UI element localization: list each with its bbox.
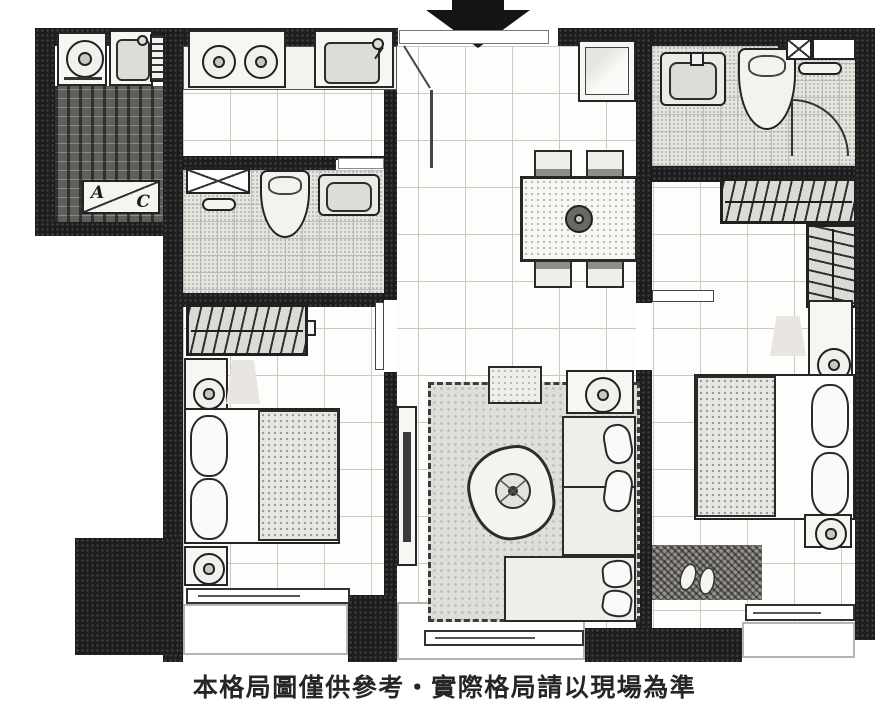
sliding-window-right-bedroom bbox=[745, 604, 855, 621]
lamp-icon bbox=[815, 518, 847, 550]
bathroom-door-sill bbox=[338, 158, 384, 169]
towel-bar bbox=[798, 62, 842, 75]
wall-ac-balcony-cap bbox=[35, 222, 183, 236]
pillow bbox=[190, 415, 228, 477]
washing-machine bbox=[57, 32, 107, 86]
woven-mat bbox=[652, 545, 762, 600]
wardrobe-right-top bbox=[720, 178, 857, 224]
side-table bbox=[566, 370, 634, 414]
wall-mid-lower bbox=[384, 372, 397, 602]
nightstand-right-top bbox=[808, 300, 853, 380]
wall-block-bottom-mid-left bbox=[348, 595, 397, 662]
television bbox=[403, 432, 411, 542]
refrigerator bbox=[578, 40, 636, 102]
wash-basin-master bbox=[318, 174, 380, 216]
ac-label-a: A bbox=[91, 183, 104, 203]
dining-chair bbox=[586, 150, 624, 178]
left-bedroom-door-leaf bbox=[375, 302, 384, 370]
nightstand-left-top bbox=[184, 358, 228, 410]
ac-label-c: C bbox=[136, 192, 150, 212]
ottoman bbox=[488, 366, 542, 404]
right-bedroom-door-leaf bbox=[652, 290, 714, 302]
bathtub-marker bbox=[186, 168, 250, 194]
dining-chair bbox=[534, 260, 572, 288]
left-balcony-floor bbox=[183, 604, 348, 655]
sliding-door-living bbox=[424, 630, 584, 646]
nightstand-right-bottom bbox=[804, 514, 852, 548]
wardrobe-left bbox=[186, 304, 308, 356]
right-bedroom-door-opening bbox=[636, 303, 652, 370]
towel-ring bbox=[202, 198, 236, 211]
pillow bbox=[190, 478, 228, 540]
wall-block-bottom-left bbox=[75, 538, 180, 655]
table-centerpiece bbox=[565, 205, 593, 233]
double-bed-left bbox=[184, 408, 340, 544]
column-stub bbox=[430, 90, 433, 168]
floor-plan: A C bbox=[0, 0, 889, 710]
dining-chair bbox=[534, 150, 572, 178]
burner-icon bbox=[202, 45, 236, 79]
pillow bbox=[811, 452, 849, 516]
louver-rack bbox=[150, 34, 165, 82]
towel-shelf bbox=[812, 38, 856, 60]
bed-blanket bbox=[696, 376, 776, 517]
entry-door-sill bbox=[399, 30, 549, 44]
ac-label-box: A C bbox=[82, 180, 160, 214]
kitchen-sink bbox=[314, 30, 394, 88]
wall-outer-left bbox=[35, 28, 55, 235]
wash-basin-front bbox=[660, 52, 726, 106]
double-bed-right bbox=[694, 374, 855, 520]
wall-outer-right bbox=[855, 28, 875, 640]
nightstand-left-bottom bbox=[184, 546, 228, 586]
wall-block-bottom-mid-right bbox=[585, 628, 742, 662]
burner-icon bbox=[244, 45, 278, 79]
gas-stove bbox=[188, 30, 286, 88]
right-balcony-floor bbox=[742, 622, 855, 658]
lamp-icon bbox=[585, 377, 621, 413]
washer-drum-icon bbox=[66, 40, 104, 78]
wall-dining-upper bbox=[636, 28, 652, 303]
shower-shelf-marker bbox=[786, 38, 812, 60]
lamp-icon bbox=[193, 378, 225, 410]
lamp-icon bbox=[193, 553, 225, 585]
left-bedroom-door-opening bbox=[384, 300, 397, 372]
wardrobe-right-side bbox=[806, 224, 857, 308]
wardrobe-knob bbox=[306, 320, 316, 336]
sliding-door-left-bedroom bbox=[186, 588, 350, 604]
disclaimer-text: 本格局圖僅供參考‧實際格局請以現場為準 bbox=[0, 668, 889, 704]
dining-chair bbox=[586, 260, 624, 288]
bed-blanket bbox=[258, 410, 339, 541]
tv-console bbox=[397, 406, 417, 566]
pillow bbox=[811, 384, 849, 448]
utility-sink bbox=[109, 30, 153, 86]
